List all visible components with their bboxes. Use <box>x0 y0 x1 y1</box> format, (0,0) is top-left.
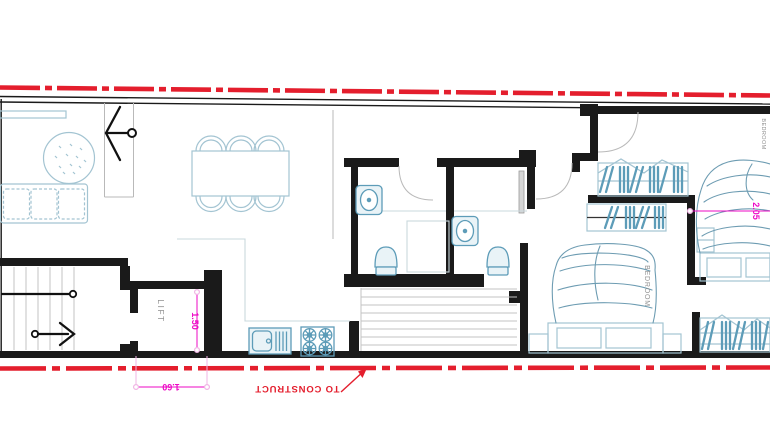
wardrobe-top <box>598 159 688 196</box>
round-rug <box>44 133 95 184</box>
toilet-left <box>375 247 397 275</box>
lift-outer-width-text: 1.60 <box>162 382 180 392</box>
bathrooms <box>356 186 527 276</box>
bed-second: 2.05 <box>688 160 770 281</box>
to-construct-annotation: TO CONSTRUCT <box>255 368 367 394</box>
dining-chairs <box>196 136 284 212</box>
site-boundary-bottom <box>0 351 770 369</box>
dining-set <box>192 136 289 212</box>
tv-shelf <box>0 111 66 118</box>
floor-plan-canvas: LIFT 1.50 1.60 <box>0 0 770 430</box>
floor-plan-page: LIFT 1.50 1.60 <box>0 0 770 430</box>
bedroom-door-arc <box>598 112 638 152</box>
washbasin-right <box>452 217 478 246</box>
living-room <box>0 111 95 223</box>
staircase <box>2 267 76 350</box>
kitchen-sink <box>249 328 291 354</box>
dimension-bed-width: 2.05 <box>688 202 770 220</box>
doors <box>105 103 639 239</box>
nightstand <box>663 334 681 353</box>
wardrobe-middle <box>587 204 666 231</box>
dimension-lift-clear-width: 1.50 <box>190 290 200 353</box>
boundary-dash-line-bottom <box>0 368 770 369</box>
bathroom-door-arc <box>399 166 433 200</box>
dimension-lift-outer-width: 1.60 <box>134 356 210 392</box>
to-construct-label: TO CONSTRUCT <box>255 383 340 394</box>
washbasin-left <box>356 186 382 215</box>
lift-clear-width-text: 1.50 <box>190 312 200 330</box>
bedroom-second-label: BEDROOM <box>760 118 766 149</box>
dining-table <box>192 151 289 196</box>
bed-blanket <box>552 244 656 323</box>
lift: LIFT 1.50 1.60 <box>134 290 210 392</box>
boundary-dash-line-top <box>0 88 770 96</box>
bed-width-text: 2.05 <box>751 202 761 220</box>
bed-main <box>529 244 681 353</box>
stair-direction-arrows <box>2 291 76 345</box>
door-leaf <box>519 171 524 213</box>
sofa <box>1 184 88 223</box>
nightstand <box>529 334 548 353</box>
entrance-arrow <box>106 107 136 160</box>
hall-door-arc <box>536 163 572 199</box>
lift-label: LIFT <box>156 299 166 322</box>
shower-tray <box>407 221 449 272</box>
wardrobe-bottom <box>700 315 770 352</box>
bottom-wall <box>0 351 770 358</box>
kitchen <box>177 239 350 356</box>
kitchen-counter-line <box>177 239 350 321</box>
bedroom-main-label: BEDROOM <box>643 265 650 307</box>
corridor-steps <box>361 288 517 351</box>
toilet-right <box>487 247 509 275</box>
